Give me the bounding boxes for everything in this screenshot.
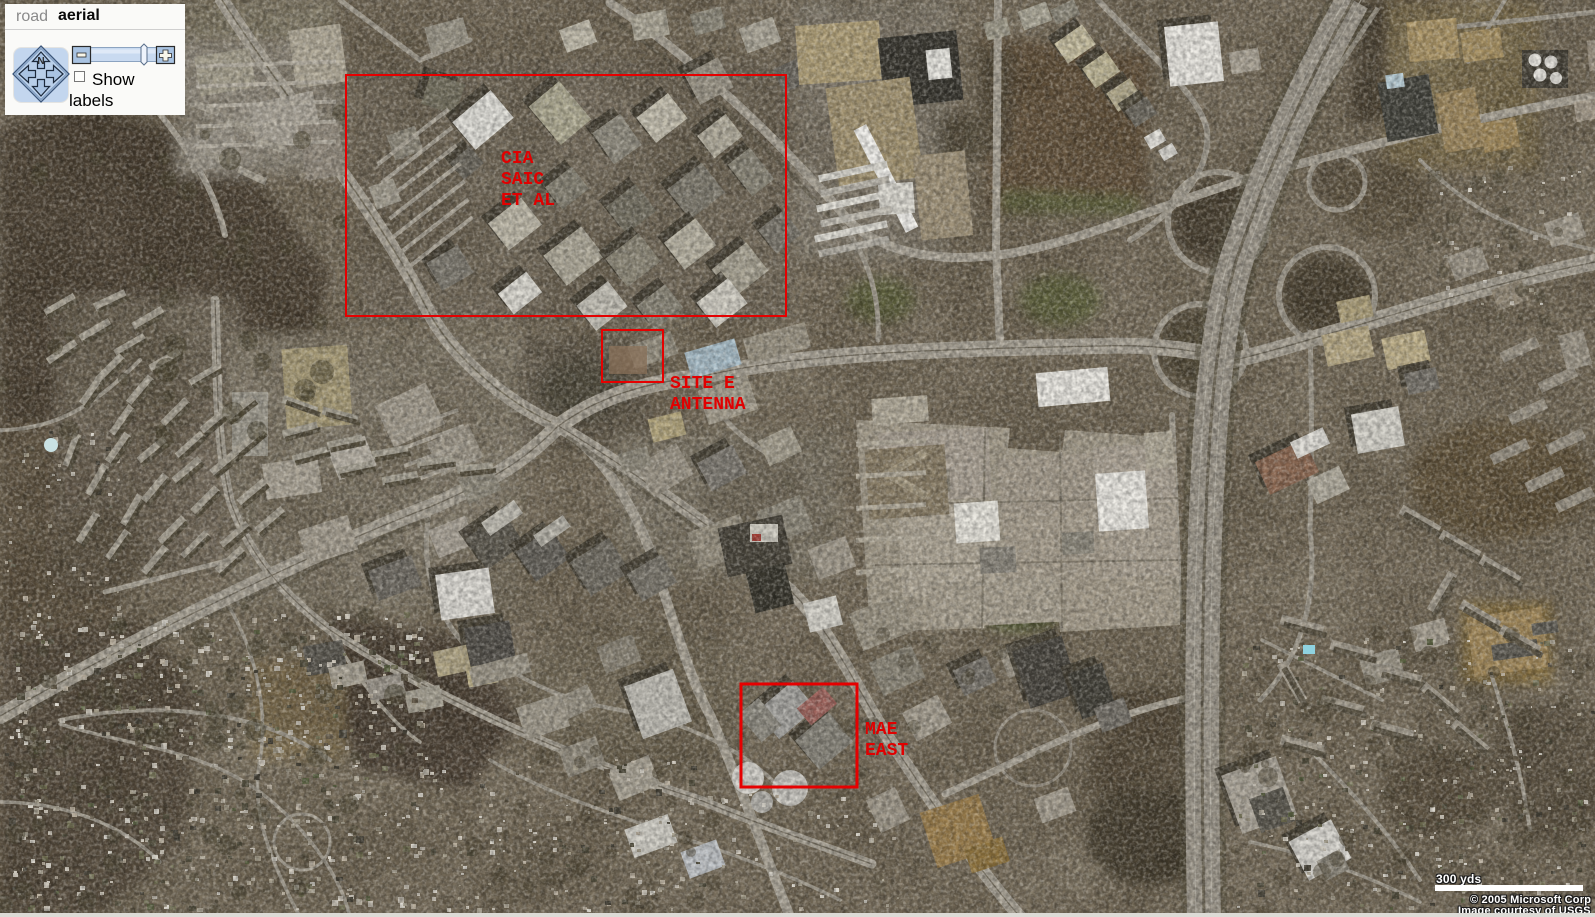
svg-text:N: N [37,56,44,67]
